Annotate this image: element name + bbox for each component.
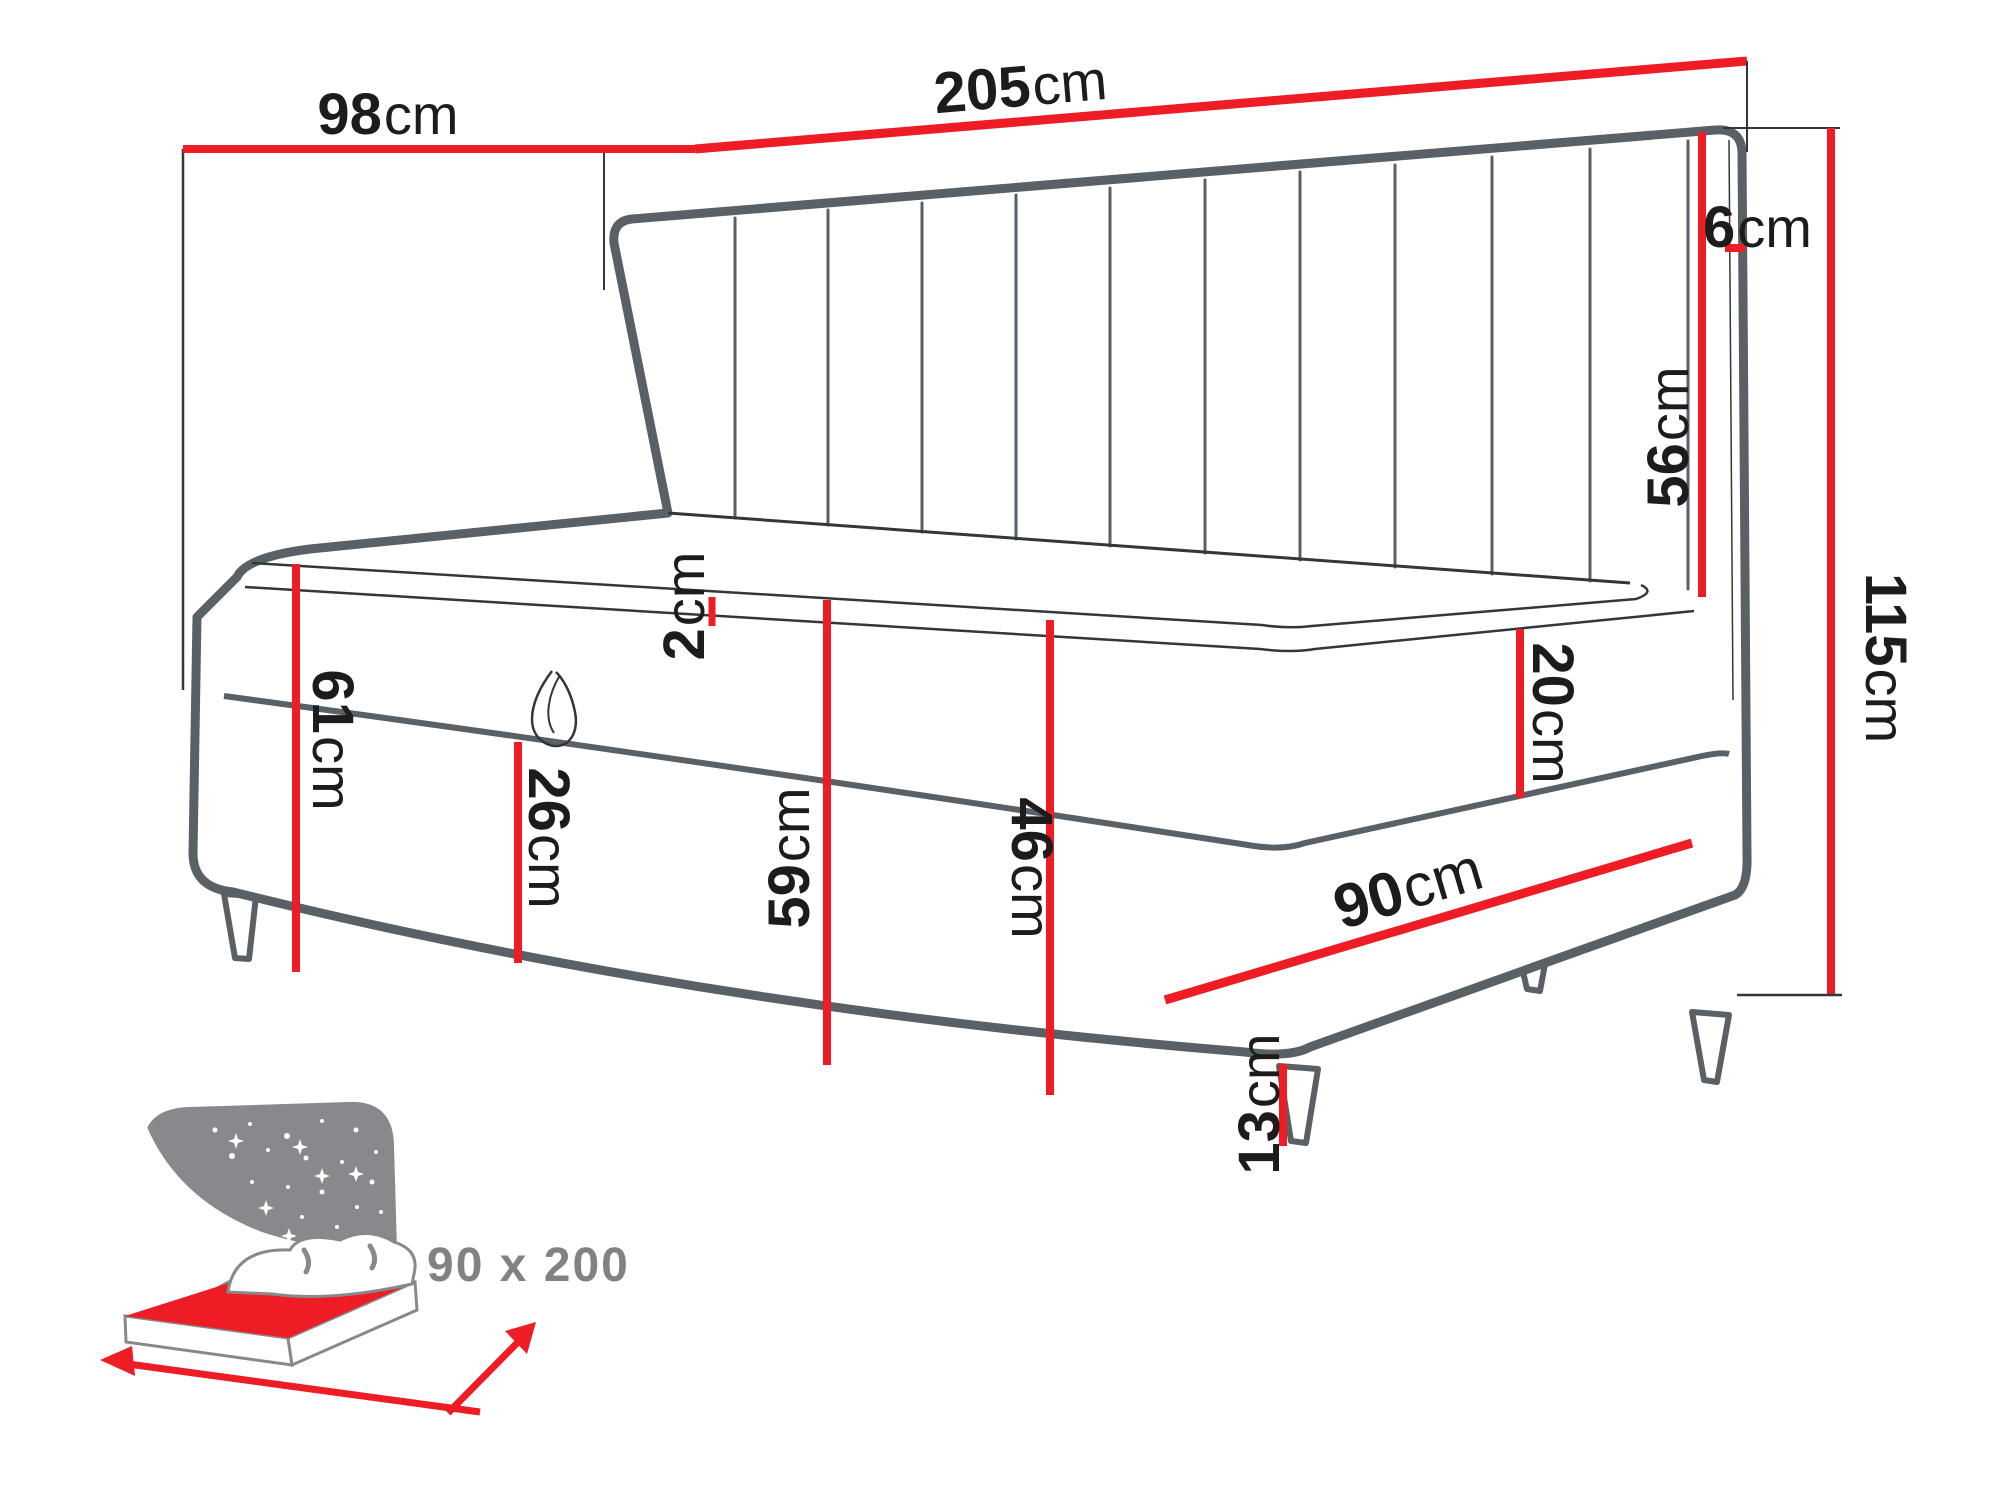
label-20cm: 20cm [1521, 642, 1586, 783]
size-badge: 90 x 200 [100, 1102, 630, 1413]
label-13cm: 13cm [1227, 1033, 1292, 1174]
label-59cm: 59cm [757, 787, 822, 928]
label-98cm: 98cm [317, 82, 458, 147]
label-56cm: 56cm [1636, 366, 1701, 507]
badge-size-label: 90 x 200 [427, 1239, 630, 1292]
diagram-canvas: 98cm 205cm 6cm 56cm 115cm 2cm 61cm 26cm … [0, 0, 2000, 1500]
bed-dimension-diagram: 98cm 205cm 6cm 56cm 115cm 2cm 61cm 26cm … [0, 0, 2000, 1500]
dim-line-205 [695, 61, 1747, 149]
label-46cm: 46cm [1000, 797, 1065, 938]
label-26cm: 26cm [517, 767, 582, 908]
front-left-leg [224, 894, 256, 959]
label-2cm: 2cm [652, 552, 717, 661]
label-61cm: 61cm [301, 669, 366, 810]
far-right-leg [1692, 1012, 1729, 1082]
label-6cm: 6cm [1703, 195, 1812, 260]
label-115cm: 115cm [1854, 573, 1919, 743]
